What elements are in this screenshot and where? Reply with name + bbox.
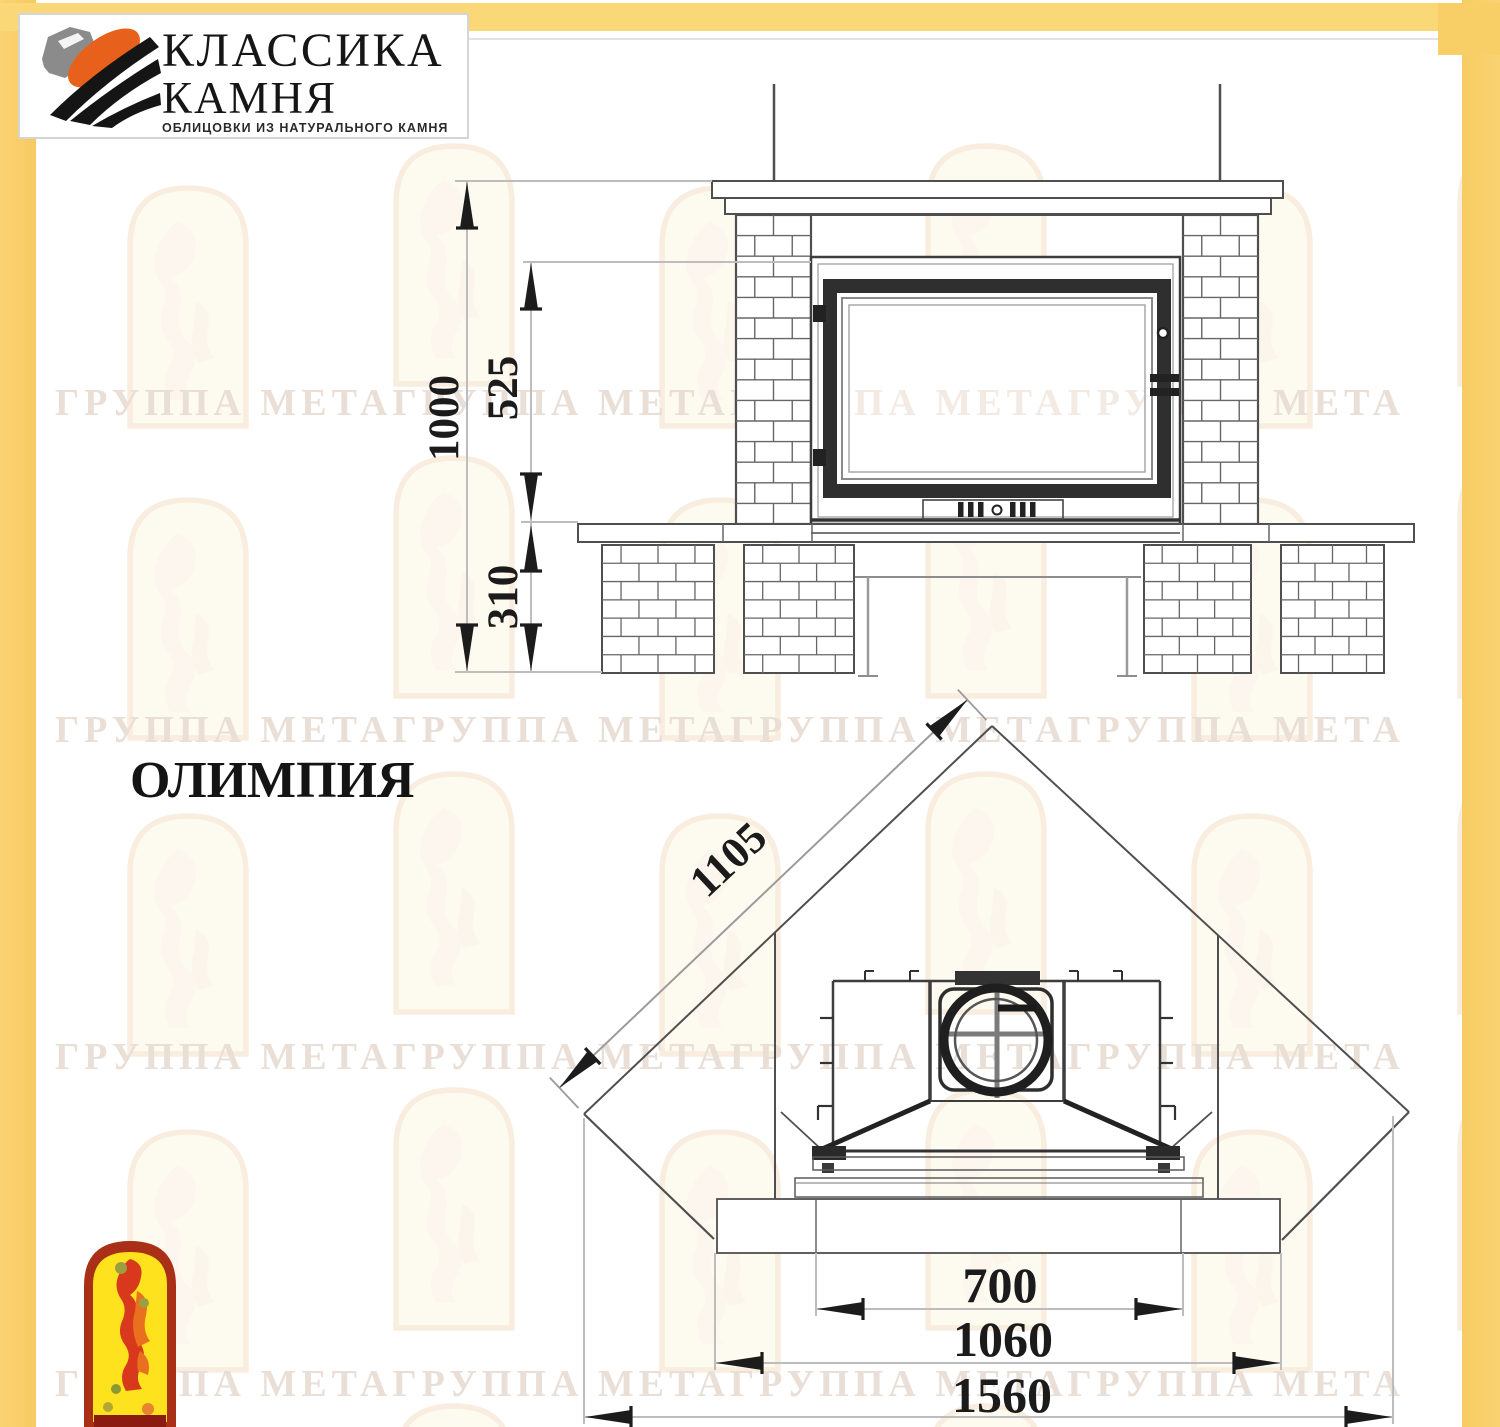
svg-text:1000: 1000 (421, 375, 468, 461)
svg-text:700: 700 (963, 1257, 1038, 1313)
svg-text:ГРУППА МЕТАГРУППА МЕТАГРУППА М: ГРУППА МЕТАГРУППА МЕТАГРУППА МЕТАГРУППА … (55, 1036, 1405, 1078)
svg-text:1060: 1060 (953, 1311, 1053, 1367)
svg-text:310: 310 (480, 565, 527, 630)
svg-text:1560: 1560 (952, 1367, 1052, 1423)
svg-text:ГРУППА МЕТАГРУППА МЕТАГРУППА М: ГРУППА МЕТАГРУППА МЕТАГРУППА МЕТАГРУППА … (55, 1363, 1405, 1405)
svg-text:525: 525 (480, 356, 527, 421)
svg-text:ГРУППА МЕТАГРУППА МЕТАГРУППА М: ГРУППА МЕТАГРУППА МЕТАГРУППА МЕТАГРУППА … (55, 709, 1405, 751)
